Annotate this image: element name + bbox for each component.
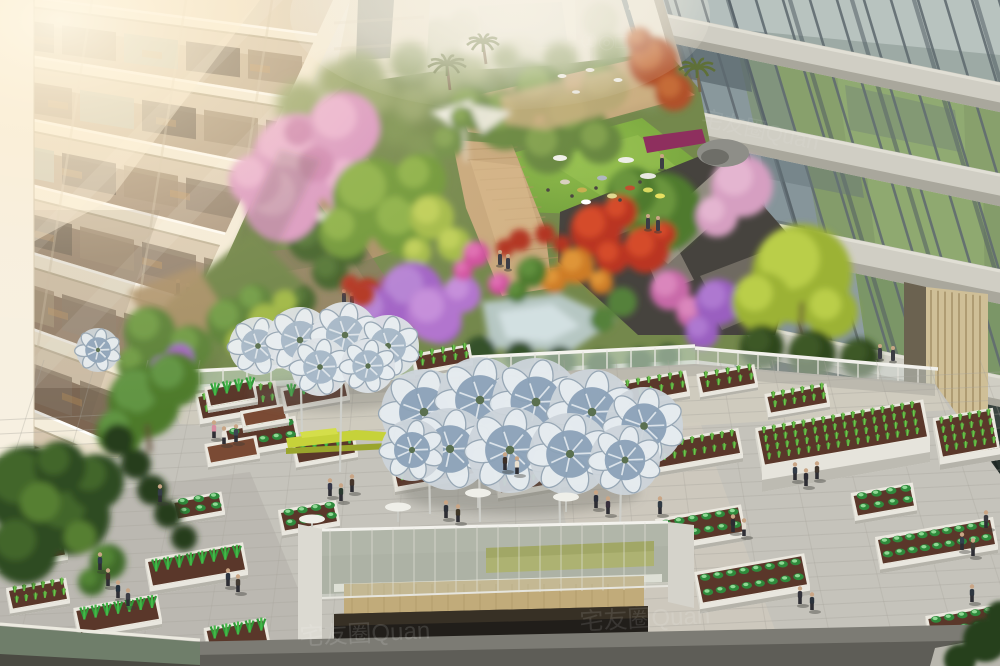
svg-text:①◎□: ①◎□	[580, 31, 627, 53]
